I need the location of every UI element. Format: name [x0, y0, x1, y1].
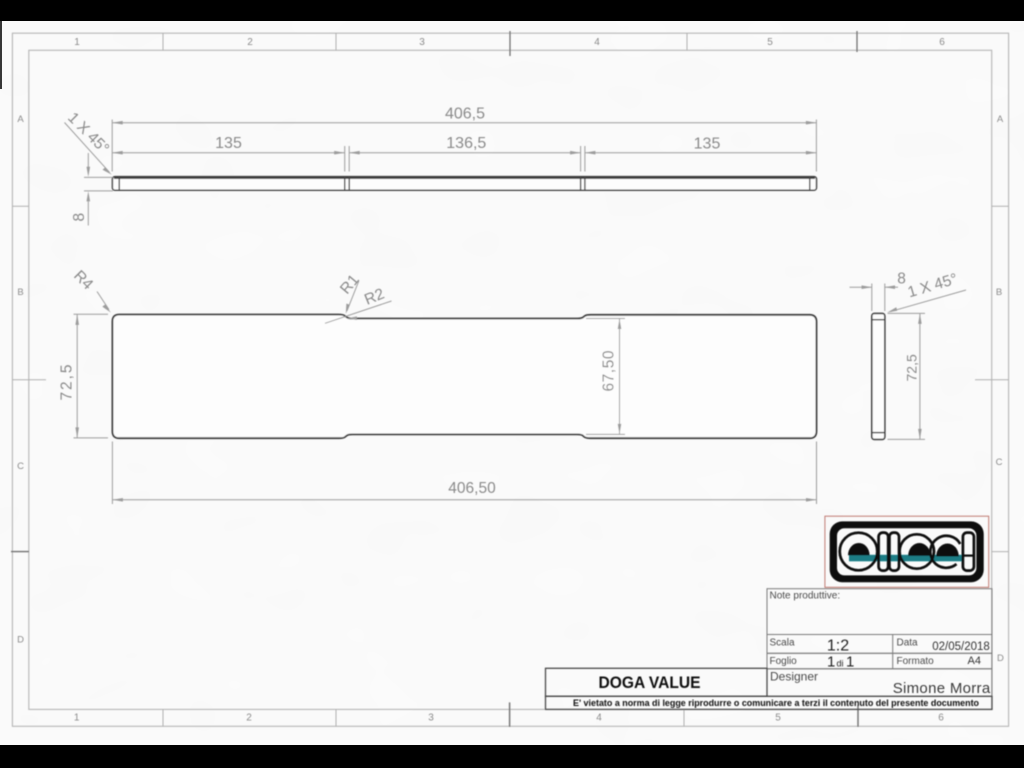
svg-text:Formato: Formato: [897, 656, 935, 667]
svg-text:A: A: [997, 114, 1004, 125]
svg-text:6: 6: [939, 37, 945, 48]
svg-text:406,50: 406,50: [448, 480, 496, 497]
svg-text:67,50: 67,50: [601, 350, 618, 391]
svg-text:4: 4: [596, 713, 602, 724]
svg-text:1: 1: [74, 713, 80, 724]
svg-text:1: 1: [827, 654, 835, 671]
svg-text:5: 5: [767, 37, 773, 48]
svg-text:B: B: [17, 287, 23, 298]
svg-text:4: 4: [594, 37, 600, 48]
svg-text:Foglio: Foglio: [770, 656, 798, 667]
svg-text:3: 3: [419, 37, 425, 48]
svg-text:C: C: [17, 461, 24, 472]
svg-text:Data: Data: [897, 638, 919, 649]
svg-text:di: di: [837, 659, 844, 669]
svg-text:02/05/2018: 02/05/2018: [932, 641, 990, 653]
svg-text:6: 6: [938, 713, 944, 724]
svg-text:Note produttive:: Note produttive:: [770, 591, 841, 602]
svg-text:1:2: 1:2: [827, 638, 849, 655]
svg-text:8: 8: [71, 213, 88, 222]
svg-text:406,5: 406,5: [445, 106, 485, 123]
svg-text:A: A: [17, 114, 24, 125]
svg-text:A4: A4: [968, 655, 981, 667]
svg-text:72,5: 72,5: [904, 354, 920, 381]
svg-text:DOGA VALUE: DOGA VALUE: [599, 673, 701, 692]
svg-text:E' vietato a norma di legge ri: E' vietato a norma di legge riprodurre o…: [573, 698, 979, 708]
svg-text:2: 2: [246, 713, 252, 724]
svg-text:C: C: [996, 457, 1003, 468]
svg-text:Designer: Designer: [770, 670, 818, 684]
svg-text:8: 8: [897, 271, 906, 288]
svg-text:D: D: [17, 635, 24, 646]
svg-text:B: B: [996, 287, 1002, 298]
svg-text:1: 1: [846, 654, 854, 671]
svg-text:5: 5: [775, 713, 781, 724]
svg-text:Simone Morra: Simone Morra: [893, 680, 991, 697]
svg-text:136,5: 136,5: [446, 135, 486, 152]
svg-text:Scala: Scala: [770, 638, 795, 649]
svg-text:D: D: [997, 653, 1004, 664]
svg-text:135: 135: [215, 135, 242, 152]
svg-text:2: 2: [247, 37, 253, 48]
svg-text:135: 135: [694, 136, 721, 153]
svg-text:3: 3: [428, 713, 434, 724]
svg-text:72,5: 72,5: [59, 365, 76, 401]
svg-text:1: 1: [74, 37, 80, 48]
